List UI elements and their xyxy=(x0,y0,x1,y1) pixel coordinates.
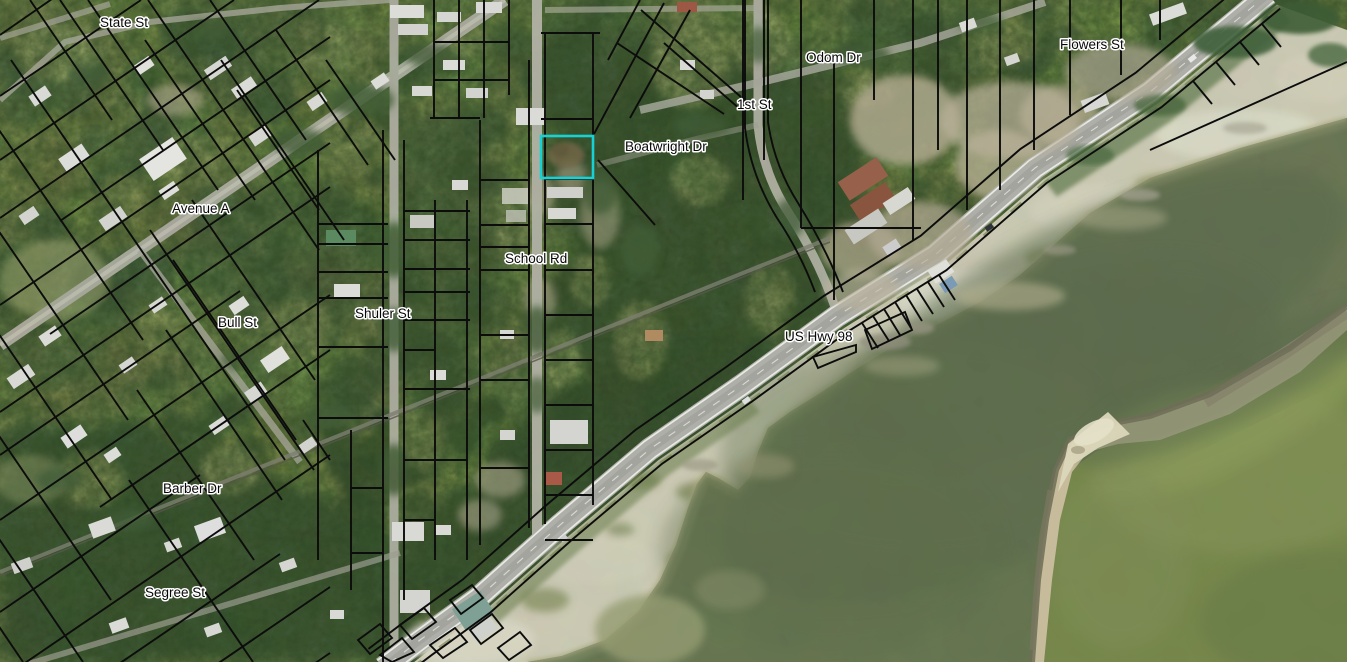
svg-text:Segree St: Segree St xyxy=(145,585,205,600)
svg-text:Odom Dr: Odom Dr xyxy=(806,50,861,65)
svg-text:1st St: 1st St xyxy=(737,97,772,112)
svg-text:US Hwy 98: US Hwy 98 xyxy=(785,329,853,344)
svg-text:Boatwright Dr: Boatwright Dr xyxy=(625,139,707,154)
svg-text:State St: State St xyxy=(100,15,148,30)
svg-text:Barber Dr: Barber Dr xyxy=(163,481,222,496)
svg-text:Shuler St: Shuler St xyxy=(355,306,411,321)
svg-text:Bull St: Bull St xyxy=(218,315,257,330)
svg-text:Flowers St: Flowers St xyxy=(1060,37,1124,52)
svg-text:School Rd: School Rd xyxy=(505,251,567,266)
svg-text:Avenue A: Avenue A xyxy=(172,201,230,216)
